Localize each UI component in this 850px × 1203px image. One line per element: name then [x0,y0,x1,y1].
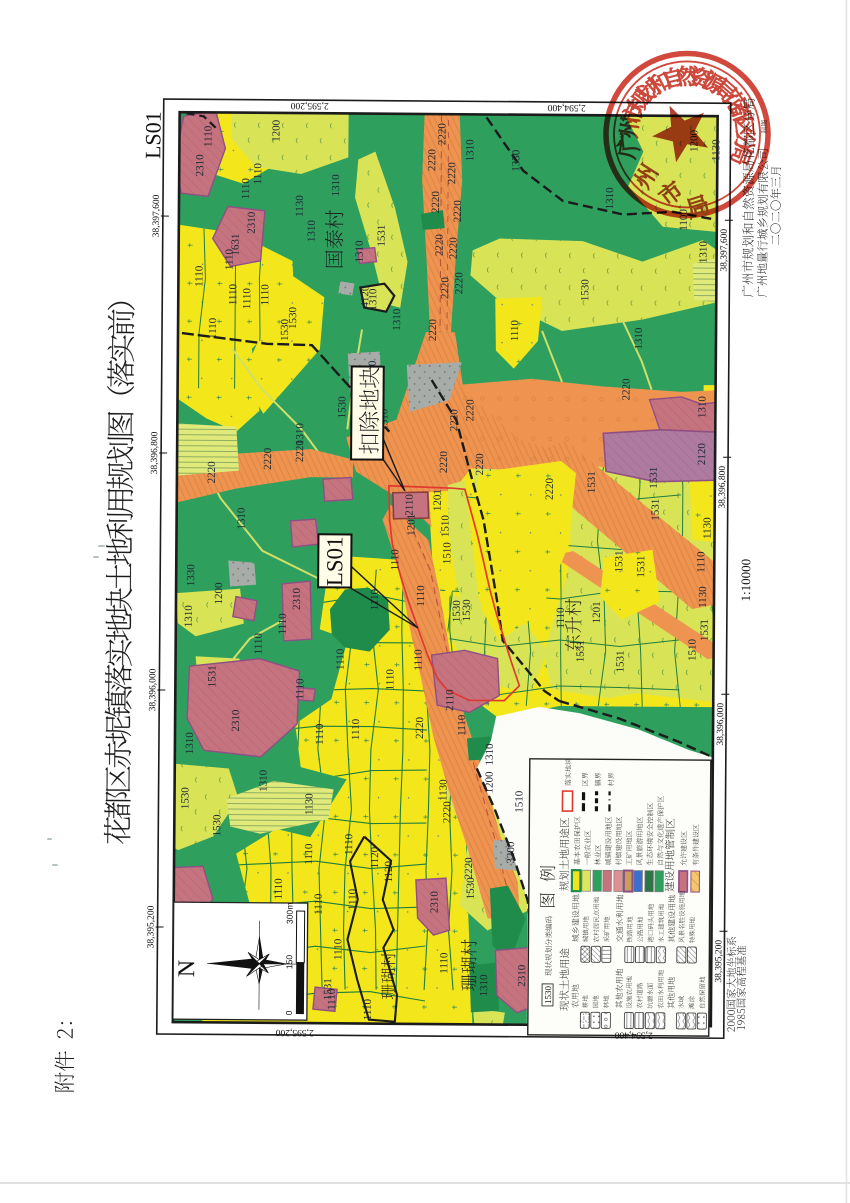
svg-text:2310: 2310 [230,709,242,732]
svg-text:1110: 1110 [259,284,271,306]
svg-text:2,594,400: 2,594,400 [614,1029,652,1039]
svg-text:2220: 2220 [206,461,218,484]
svg-text:LS01: LS01 [140,111,165,159]
svg-text:2220: 2220 [434,234,446,257]
svg-text:1110: 1110 [294,678,306,700]
svg-text:1531: 1531 [650,499,662,521]
svg-text:1110: 1110 [695,551,707,573]
svg-text:1130: 1130 [710,139,722,161]
svg-text:2220: 2220 [448,237,460,260]
svg-text:2310: 2310 [246,211,258,234]
svg-text:2310: 2310 [516,964,528,987]
svg-text:1310: 1310 [183,605,195,628]
svg-text:1531: 1531 [699,619,711,641]
svg-text:1531: 1531 [614,650,626,672]
svg-text:38,396,800: 38,396,800 [718,466,728,509]
svg-text:m: m [285,902,295,909]
svg-text:2220: 2220 [446,162,458,185]
svg-text:1110: 1110 [273,878,285,900]
svg-text:2220: 2220 [414,716,426,739]
svg-text:38,397,600: 38,397,600 [719,229,729,272]
svg-text:1110: 1110 [277,613,289,635]
svg-text:1530: 1530 [461,599,473,622]
svg-text:1110: 1110 [252,163,264,185]
svg-text:1110: 1110 [326,988,338,1010]
svg-text:1531: 1531 [206,665,218,687]
svg-text:2220: 2220 [463,857,475,880]
svg-text:38,395,200: 38,395,200 [714,940,724,983]
svg-text:2,595,200: 2,595,200 [275,1027,313,1037]
svg-text:1110: 1110 [412,649,424,671]
svg-text:1130: 1130 [701,517,713,539]
svg-text:1531: 1531 [635,556,647,578]
svg-text:1310: 1310 [633,327,645,350]
svg-text:2220: 2220 [544,477,556,500]
svg-text:4120: 4120 [359,285,371,308]
svg-text:38,396,000: 38,396,000 [148,668,158,711]
svg-text:1110: 1110 [509,320,521,342]
svg-text:1510: 1510 [441,542,453,565]
svg-text:38,395,200: 38,395,200 [146,905,156,948]
svg-text:1130: 1130 [294,195,306,217]
svg-text:1310: 1310 [306,220,318,243]
svg-text:1200: 1200 [213,582,225,605]
svg-text:38,396,000: 38,396,000 [716,703,726,746]
svg-text:1531: 1531 [586,471,598,493]
svg-text:1310: 1310 [478,974,490,997]
svg-text:N: N [174,960,200,978]
svg-text:1531: 1531 [376,225,388,247]
svg-text:2120: 2120 [696,443,708,466]
svg-text:1310: 1310 [484,743,496,766]
svg-text:1110: 1110 [384,669,396,691]
svg-text:1120: 1120 [383,860,395,882]
svg-text:1310: 1310 [258,769,270,792]
svg-text:1110: 1110 [241,288,253,310]
svg-text:1530: 1530 [211,814,223,837]
svg-text:1510: 1510 [513,790,525,813]
svg-text:2220: 2220 [441,801,453,824]
svg-text:2220: 2220 [430,191,442,214]
svg-text:1310: 1310 [354,240,366,263]
svg-text:1110: 1110 [456,714,468,736]
svg-text:1110: 1110 [303,843,315,865]
svg-text:2220: 2220 [262,447,274,470]
svg-text:2220: 2220 [474,453,486,476]
svg-text:2310: 2310 [291,587,303,610]
svg-text:38,396,800: 38,396,800 [150,431,160,474]
svg-text:1110: 1110 [555,607,567,629]
svg-text:2310: 2310 [194,154,206,177]
svg-text:1310: 1310 [698,241,710,264]
svg-text:2220: 2220 [453,272,465,295]
svg-text:1531: 1531 [648,467,660,489]
svg-text:1:10000: 1:10000 [738,559,753,602]
svg-text:1310: 1310 [294,423,306,446]
svg-text:1110: 1110 [253,633,265,655]
svg-text:1200: 1200 [270,119,282,142]
svg-text:1310: 1310 [184,732,196,755]
svg-text:1200: 1200 [484,771,496,794]
svg-text:1310: 1310 [696,396,708,419]
svg-text:2110: 2110 [404,494,416,516]
svg-text:1110: 1110 [332,938,344,960]
svg-text:2,594,400: 2,594,400 [547,102,585,112]
svg-text:1110: 1110 [389,549,401,571]
svg-text:1330: 1330 [185,564,197,587]
svg-text:1100: 1100 [678,209,690,231]
svg-text:1110: 1110 [223,248,235,270]
svg-text:1201: 1201 [591,601,603,623]
svg-text:1110: 1110 [334,648,346,670]
svg-text:2220: 2220 [438,451,450,474]
svg-text:1201: 1201 [405,514,417,536]
svg-text:2220: 2220 [426,148,438,171]
svg-text:2220: 2220 [621,378,633,401]
svg-text:1310: 1310 [604,187,616,210]
svg-text:3200: 3200 [505,841,517,864]
svg-text:1110: 1110 [313,893,325,915]
svg-text:1110: 1110 [415,585,427,607]
svg-text:1130: 1130 [303,793,315,815]
svg-text:2220: 2220 [464,399,476,422]
svg-text:1310: 1310 [236,507,248,530]
svg-text:1310: 1310 [464,139,476,162]
svg-text:1530: 1530 [336,396,348,419]
svg-text:1110: 1110 [347,888,359,910]
svg-text:2220: 2220 [452,200,464,223]
svg-text:1530: 1530 [543,985,553,1004]
svg-text:150: 150 [284,955,294,970]
svg-text:1530: 1530 [279,318,291,341]
svg-text:1330: 1330 [510,149,522,172]
svg-text:1201: 1201 [432,489,444,511]
svg-text:1510: 1510 [687,638,699,661]
svg-text:1110: 1110 [362,998,374,1020]
svg-text:2,595,200: 2,595,200 [290,100,328,110]
svg-text:2110: 2110 [444,689,456,711]
svg-text:LS01: LS01 [322,536,347,586]
svg-text:1310: 1310 [330,174,342,197]
svg-text:1110: 1110 [202,125,214,147]
svg-text:1110: 1110 [193,265,205,287]
svg-text:1110: 1110 [350,718,362,740]
svg-text:2220: 2220 [439,277,451,300]
svg-text:1110: 1110 [207,317,219,339]
svg-text:2220: 2220 [427,319,439,342]
svg-text:1110: 1110 [314,723,326,745]
svg-text:1110: 1110 [227,283,239,305]
svg-text:2220: 2220 [448,409,460,432]
svg-text:1120: 1120 [369,846,381,868]
svg-text:1310: 1310 [391,308,403,331]
svg-text:2220: 2220 [436,123,448,146]
svg-text:1110: 1110 [240,178,252,200]
svg-text:0: 0 [284,1010,294,1015]
svg-text:1110: 1110 [438,952,450,974]
svg-text:1130: 1130 [697,586,709,608]
svg-text:300: 300 [285,910,295,925]
svg-text:1110: 1110 [343,833,355,855]
svg-text:1510: 1510 [439,515,451,538]
svg-text:2310: 2310 [429,891,441,914]
svg-text:1130: 1130 [438,779,450,801]
svg-text:1531: 1531 [613,550,625,572]
svg-text:1530: 1530 [179,787,191,810]
svg-text:1530: 1530 [579,279,591,302]
svg-text:38,397,600: 38,397,600 [152,194,162,237]
